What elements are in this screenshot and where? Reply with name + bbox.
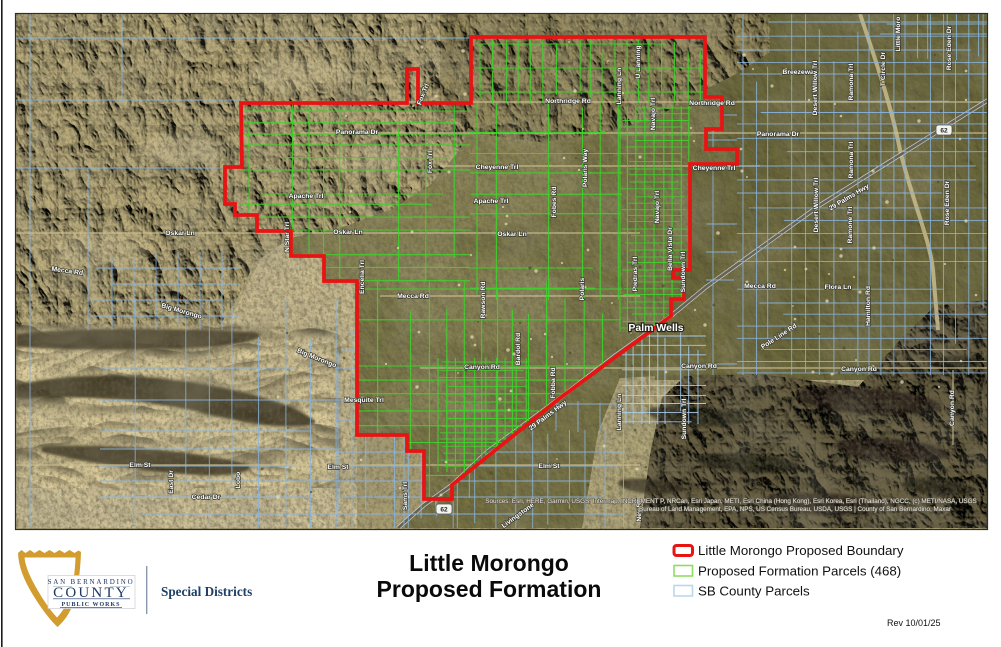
- svg-text:Desert Willow Trl: Desert Willow Trl: [813, 178, 820, 233]
- svg-text:Rose Eden Dr: Rose Eden Dr: [944, 180, 951, 225]
- svg-text:Polaris Way: Polaris Way: [582, 149, 589, 187]
- svg-text:Lanning Ln: Lanning Ln: [616, 68, 623, 105]
- svg-text:Northridge Rd: Northridge Rd: [545, 98, 591, 105]
- svg-text:Lobo: Lobo: [235, 472, 242, 489]
- svg-text:N Star Trl: N Star Trl: [284, 222, 291, 252]
- svg-text:Elm St: Elm St: [538, 463, 560, 470]
- svg-text:Lanning Ln: Lanning Ln: [616, 394, 623, 431]
- svg-text:Flora Ln: Flora Ln: [825, 284, 852, 291]
- svg-text:Piedras Trl: Piedras Trl: [632, 257, 639, 292]
- svg-text:Proposed Formation Parcels (46: Proposed Formation Parcels (468): [698, 564, 901, 579]
- svg-text:Canyon Rd: Canyon Rd: [681, 363, 717, 370]
- svg-text:62: 62: [940, 127, 948, 134]
- svg-text:Canyon Rd: Canyon Rd: [949, 390, 956, 426]
- svg-text:Oskar Ln: Oskar Ln: [165, 230, 194, 237]
- svg-text:Rev 10/01/25: Rev 10/01/25: [887, 618, 941, 628]
- svg-text:Bureau of Land Management, EPA: Bureau of Land Management, EPA, NPS, US …: [639, 506, 951, 513]
- svg-text:Encelia Trl: Encelia Trl: [359, 260, 366, 294]
- svg-text:Fobes Rd: Fobes Rd: [551, 187, 558, 218]
- svg-text:Sundown Trl: Sundown Trl: [681, 399, 688, 440]
- svg-text:Elm St: Elm St: [129, 462, 151, 469]
- svg-text:Oskar Ln: Oskar Ln: [497, 231, 526, 238]
- svg-text:Rose Eden Dr: Rose Eden Dr: [946, 25, 953, 70]
- svg-text:COUNTY: COUNTY: [53, 585, 129, 601]
- svg-text:U Lanning: U Lanning: [635, 45, 642, 78]
- svg-text:Sams Trl: Sams Trl: [402, 482, 409, 510]
- svg-text:Northridge Rd: Northridge Rd: [689, 100, 735, 107]
- svg-text:Little Morongo Proposed Bounda: Little Morongo Proposed Boundary: [698, 543, 904, 558]
- svg-text:Cheyenne Trl: Cheyenne Trl: [693, 165, 736, 172]
- svg-text:Proposed Formation: Proposed Formation: [377, 576, 602, 602]
- svg-text:Mecca Rd: Mecca Rd: [397, 293, 429, 300]
- svg-text:Sources: Esri, HERE, Garmin, U: Sources: Esri, HERE, Garmin, USGS, Inter…: [485, 498, 976, 505]
- svg-text:Panorama Dr: Panorama Dr: [757, 131, 800, 138]
- svg-text:Bardol Rd: Bardol Rd: [515, 333, 522, 365]
- svg-text:Desert Willow Trl: Desert Willow Trl: [812, 61, 819, 116]
- svg-text:Ramona Trl: Ramona Trl: [848, 141, 855, 178]
- svg-text:Mecca Rd: Mecca Rd: [744, 283, 776, 290]
- svg-text:SB County Parcels: SB County Parcels: [698, 584, 810, 599]
- svg-text:Elm St: Elm St: [327, 464, 349, 471]
- svg-text:Canyon Rd: Canyon Rd: [464, 364, 500, 371]
- svg-text:T Circle Dr: T Circle Dr: [880, 51, 887, 86]
- svg-text:Bella Vista Dr: Bella Vista Dr: [667, 227, 674, 271]
- svg-text:Cedar Dr: Cedar Dr: [192, 494, 221, 501]
- svg-text:Palm Wells: Palm Wells: [628, 322, 683, 334]
- svg-text:PUBLIC WORKS: PUBLIC WORKS: [61, 602, 120, 608]
- svg-text:East Dr: East Dr: [168, 470, 175, 494]
- svg-text:Little Morongo: Little Morongo: [409, 550, 569, 576]
- svg-text:62: 62: [440, 506, 448, 513]
- svg-text:Polaris: Polaris: [579, 277, 586, 300]
- svg-text:Fox Trl: Fox Trl: [427, 151, 434, 173]
- svg-text:Navajo Trl: Navajo Trl: [654, 191, 661, 224]
- svg-text:Apache Trl: Apache Trl: [289, 193, 324, 200]
- svg-text:Apache Trl: Apache Trl: [474, 198, 509, 205]
- svg-text:Sundown Trl: Sundown Trl: [680, 252, 687, 293]
- svg-text:Ramone Trl: Ramone Trl: [847, 206, 854, 243]
- svg-text:Fobba Rd: Fobba Rd: [550, 367, 557, 398]
- svg-text:Little Moro: Little Moro: [895, 17, 902, 52]
- svg-text:Canyon Rd: Canyon Rd: [841, 366, 877, 373]
- svg-text:Special Districts: Special Districts: [161, 584, 252, 599]
- svg-text:Ramona Trl: Ramona Trl: [848, 63, 855, 100]
- svg-text:Cheyenne Trl: Cheyenne Trl: [476, 164, 519, 171]
- svg-text:Panorama Dr: Panorama Dr: [336, 129, 379, 136]
- svg-text:Rawson Rd: Rawson Rd: [480, 281, 487, 318]
- svg-text:Mesquite Trl: Mesquite Trl: [344, 397, 384, 404]
- svg-text:Navajo Trl: Navajo Trl: [650, 98, 657, 131]
- svg-text:Oskar Ln: Oskar Ln: [333, 229, 362, 236]
- svg-text:Hamilton Rd: Hamilton Rd: [865, 286, 872, 326]
